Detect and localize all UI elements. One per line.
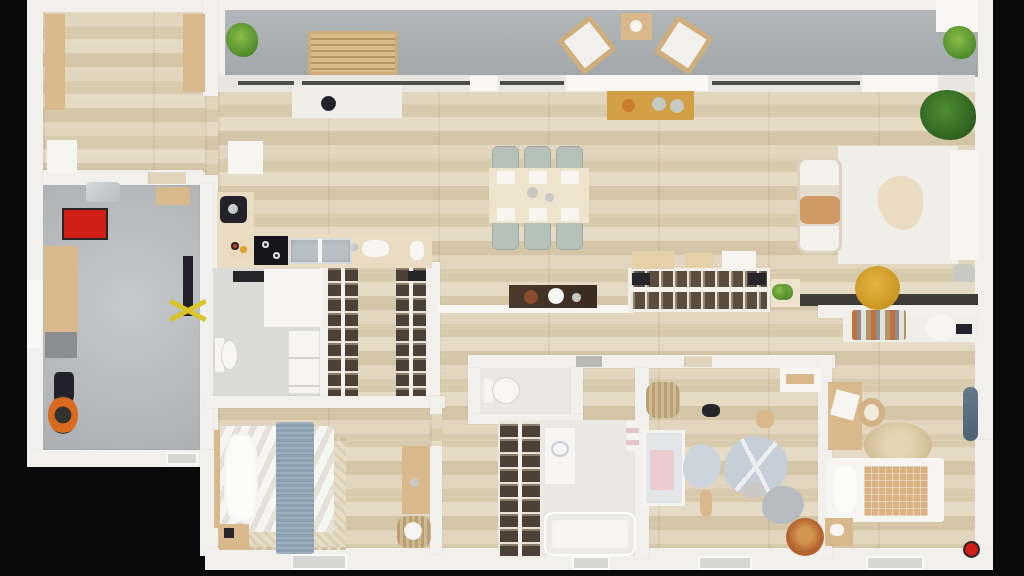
burner-1: [262, 241, 269, 248]
shelf-frame-a: [632, 251, 674, 269]
master-throw: [276, 422, 314, 554]
sideboard-bowl-red: [524, 290, 538, 304]
window-sill-2: [566, 75, 708, 91]
kitchen-grinder: [410, 241, 424, 260]
bedroom2-clothes-rail: [852, 310, 906, 340]
fridge: [228, 141, 263, 174]
terracotta-basket: [786, 518, 824, 556]
entry-washer: [47, 140, 77, 173]
vanity-sink: [551, 441, 569, 457]
shelf-frame-b: [685, 253, 713, 268]
shower-tray: [264, 269, 322, 327]
sliding-door-glass-3: [500, 81, 564, 85]
sink-divider: [318, 239, 322, 263]
tool-chest-red: [62, 208, 108, 240]
sink-faucet: [350, 243, 358, 251]
fruit-orange: [231, 242, 239, 250]
yellow-pouf: [855, 266, 900, 310]
entry-wardrobe-left: [45, 14, 65, 110]
closet-rack-left: [328, 266, 358, 396]
bathroom1-dark-mat: [233, 271, 267, 282]
living-plant-large: [920, 90, 976, 140]
sliding-door-glass-1: [238, 81, 294, 85]
sofa-right: [950, 150, 978, 260]
window-bottom-2: [572, 556, 610, 570]
wardrobe-end-left: [632, 273, 650, 285]
garage-window: [166, 452, 198, 465]
balcony-cup: [630, 20, 642, 32]
master-desk-knob: [410, 478, 419, 487]
bed2-blanket: [864, 466, 928, 516]
fruit-lemon: [240, 246, 247, 253]
balcony-bench: [308, 31, 398, 75]
toilet1-bowl: [221, 340, 238, 370]
dining-chair-bottom-1: [492, 220, 519, 250]
toilet-right-wall: [571, 368, 583, 414]
cooktop: [254, 236, 288, 265]
nursery-toy-bunny: [756, 410, 774, 428]
master-pillows: [224, 434, 258, 522]
nursery-basket: [646, 382, 680, 418]
shelf-cactus: [772, 284, 788, 300]
dining-chair-bottom-3: [556, 220, 583, 250]
toy-rattle: [744, 482, 762, 498]
bedroom2-desk-chair: [926, 315, 956, 341]
sofa-side-items: [953, 264, 975, 282]
entry-opening-floor: [205, 95, 218, 175]
nightstand-item: [224, 528, 234, 538]
mid-wall: [468, 355, 835, 368]
master-top-wall: [205, 396, 445, 408]
workbench: [44, 246, 78, 334]
closet-rack-right: [396, 266, 426, 396]
balcony-plant-2: [943, 26, 976, 59]
window-bottom-4: [866, 556, 924, 570]
nursery-shelf-toys: [786, 374, 814, 384]
bedroom2-side-items: [830, 524, 844, 536]
placemat-5: [529, 208, 547, 221]
table-plate-1: [527, 187, 538, 198]
placemat-4: [497, 208, 515, 221]
sliding-door-glass-4: [712, 81, 860, 85]
toy-giraffe: [700, 490, 712, 516]
shelf-frame-c: [722, 251, 756, 269]
sideboard-knob: [572, 293, 581, 302]
garage-side-door: [27, 280, 41, 348]
master-doorway: [430, 414, 442, 446]
armchair-lumbar-cushion: [800, 196, 840, 224]
balcony-plant-1: [226, 23, 258, 57]
master-basket-towel: [404, 522, 422, 540]
crib-blanket: [650, 450, 674, 490]
placemat-6: [561, 208, 579, 221]
runner-bowl-b: [652, 97, 666, 111]
skateboard: [963, 387, 978, 441]
placemat-2: [529, 171, 547, 184]
kitchen-bottles: [362, 240, 389, 257]
coffee-machine-dot: [228, 204, 238, 214]
closet-right-wall: [426, 262, 440, 408]
mid-wall-door-mat: [576, 356, 602, 367]
bed2-pillow: [831, 464, 859, 514]
sideboard-bowl-white: [548, 288, 564, 304]
nursery-toy-dark: [702, 404, 720, 417]
window-post-1: [470, 76, 498, 91]
window-bottom-1: [291, 554, 347, 570]
entry-right-wall-upper: [203, 0, 218, 96]
burner-2: [273, 252, 280, 259]
kitchen-island: [292, 85, 402, 118]
toilet2-bowl: [492, 377, 520, 404]
fruit-plate: [226, 238, 251, 259]
closet-rack-center: [498, 420, 542, 558]
window-sill-3: [862, 75, 938, 92]
table-plate-2: [545, 193, 554, 202]
runner-bowl-c: [670, 99, 684, 113]
lawnmower-wheel: [48, 396, 78, 434]
window-bottom-3: [698, 556, 752, 570]
placemat-1: [497, 171, 515, 184]
dining-chair-bottom-2: [524, 220, 551, 250]
runner-bowl-a: [622, 99, 635, 112]
bathtub: [544, 512, 636, 556]
bathroom1-dresser: [288, 330, 320, 394]
garage-wood-mat: [156, 187, 190, 205]
entry-wardrobe-right: [183, 14, 205, 92]
placemat-3: [561, 171, 579, 184]
island-round-sink: [321, 96, 336, 111]
red-ball: [963, 541, 980, 558]
workbench-vise: [45, 332, 77, 358]
nursery-doorway: [684, 356, 712, 367]
floor-plan-render: [0, 0, 1024, 576]
closet-rack-top-shelf: [408, 271, 426, 281]
garage-chrome-case: [86, 182, 120, 202]
toilet-left-wall: [468, 368, 480, 416]
towel-rolls: [626, 421, 639, 451]
bedroom2-round-chair: [858, 398, 885, 427]
wardrobe-end-right: [748, 273, 766, 285]
wall-socket: [956, 324, 972, 334]
entry-garage-doorway: [148, 172, 186, 184]
